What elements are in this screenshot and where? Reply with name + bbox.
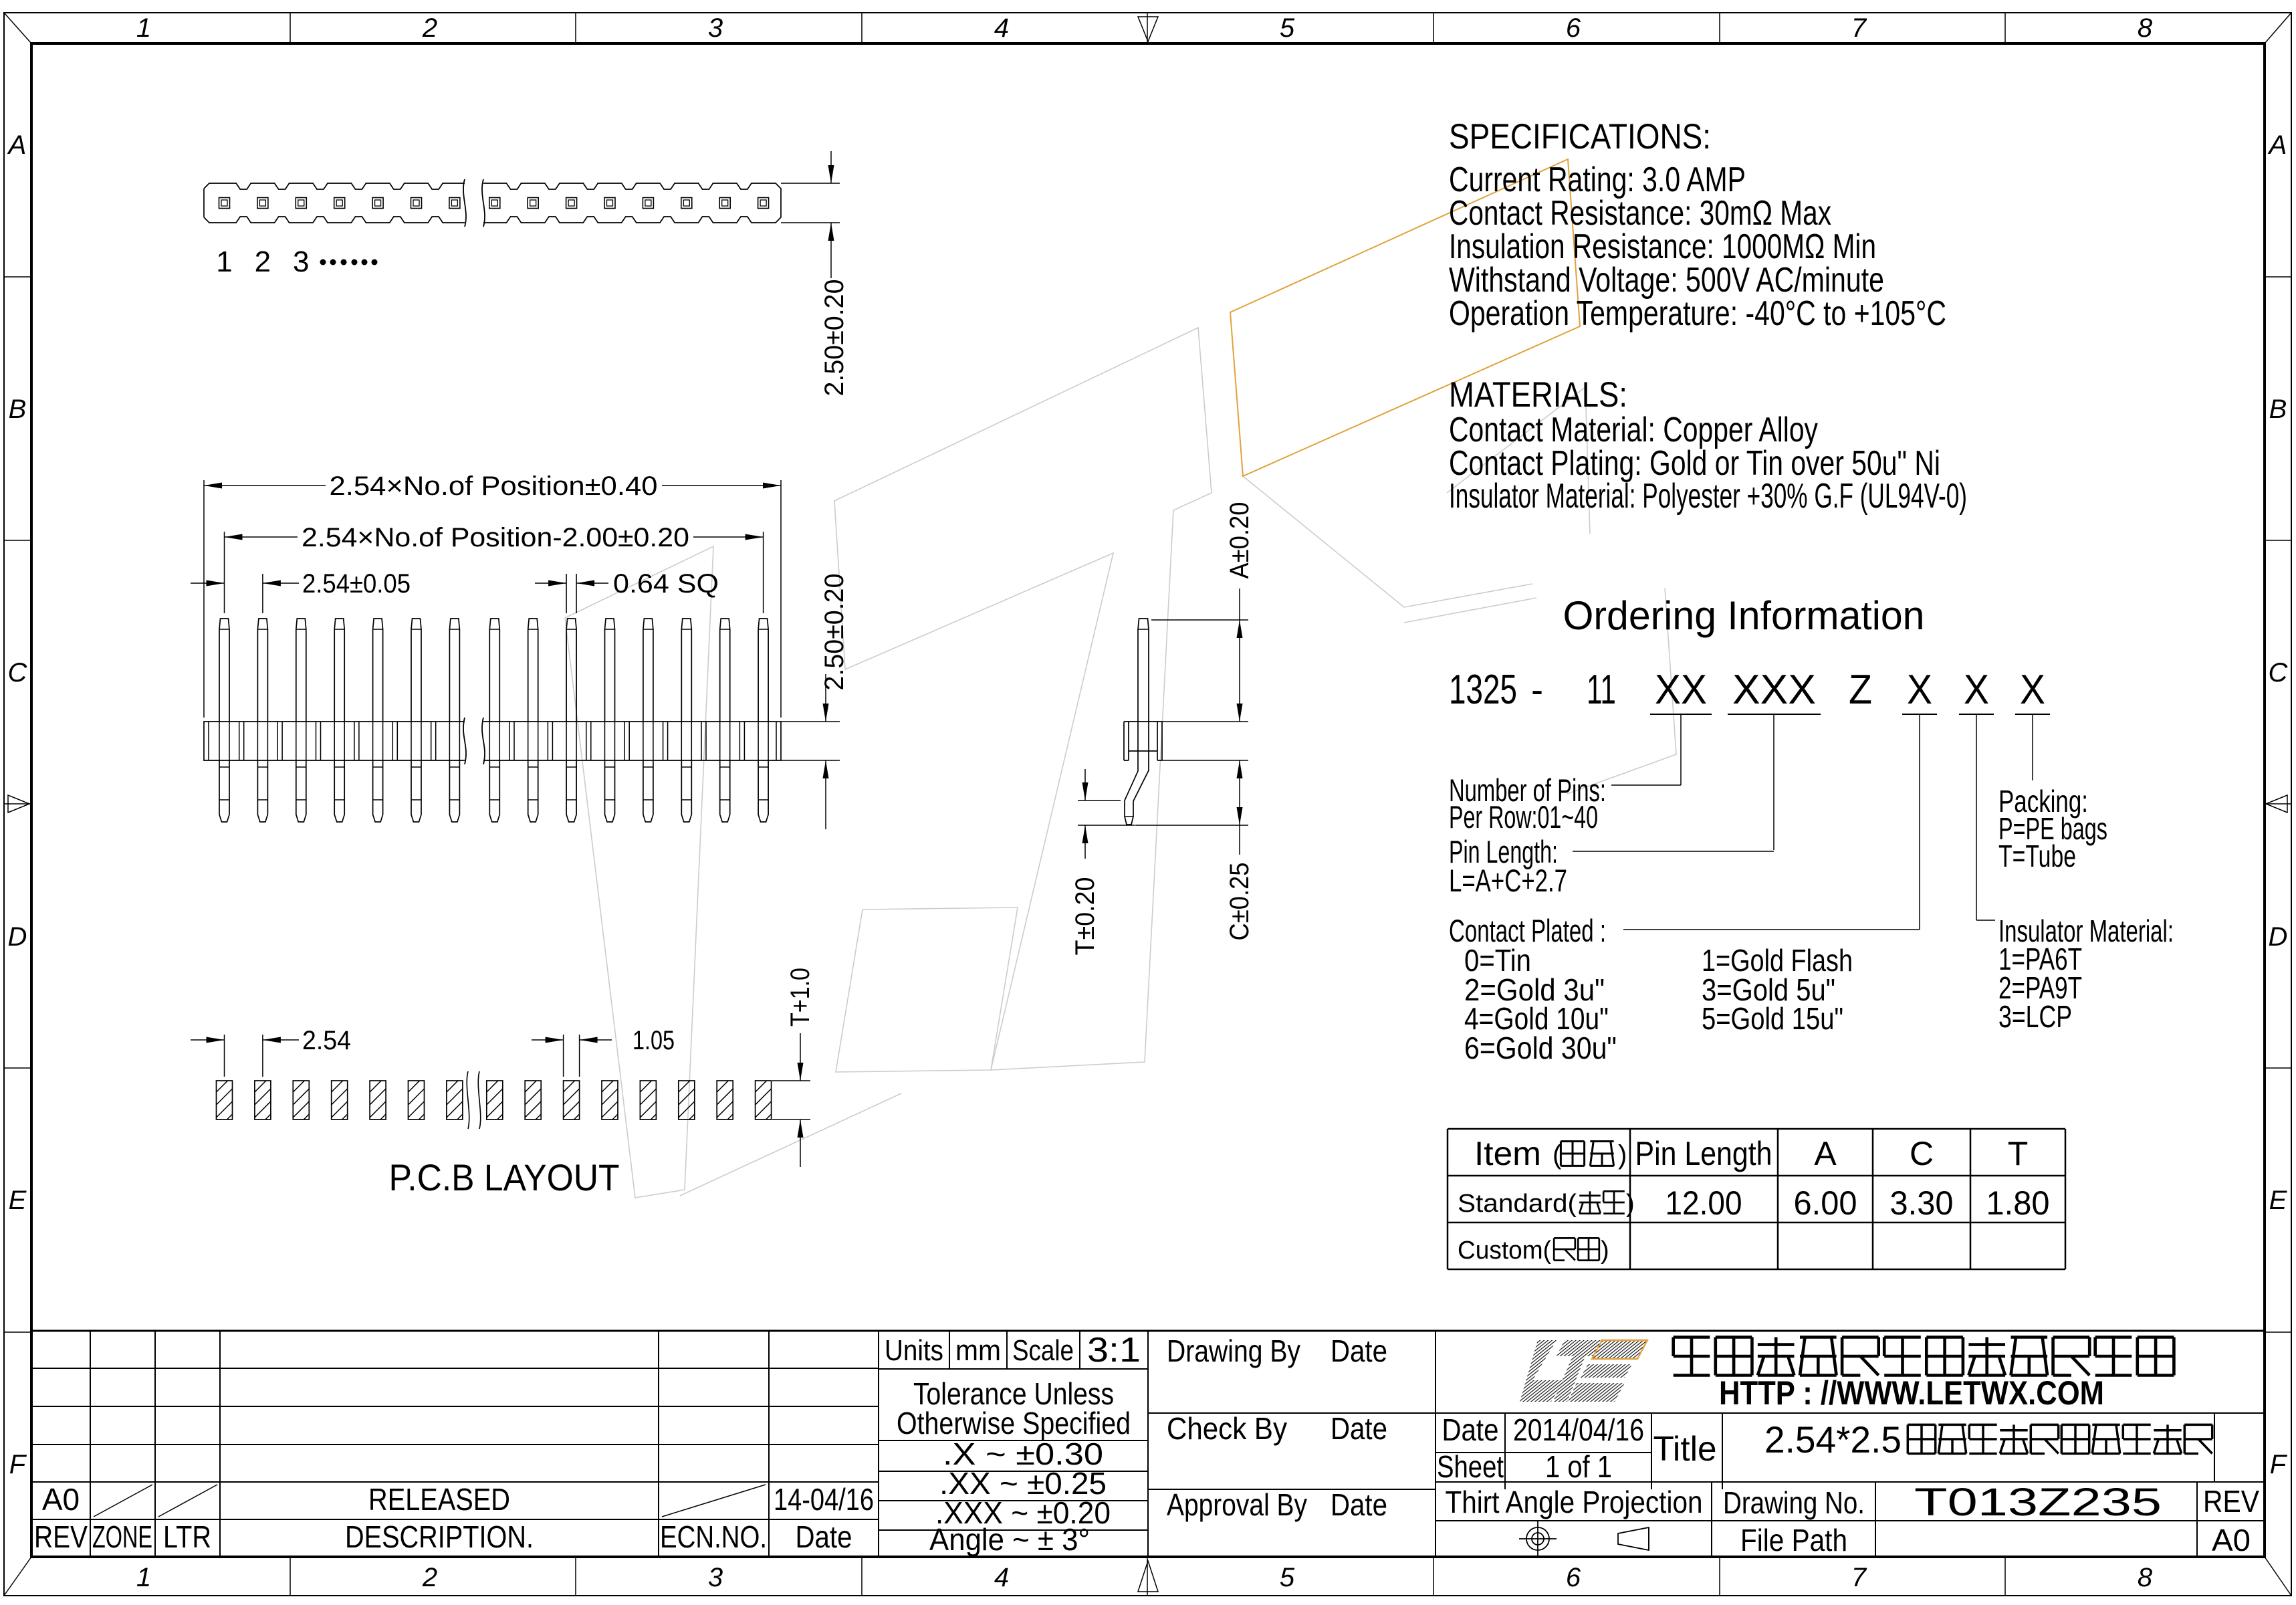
svg-text:7: 7 <box>1851 1563 1867 1592</box>
svg-text:3: 3 <box>293 245 309 278</box>
svg-text:Operation Temperature: -40°C t: Operation Temperature: -40°C to +105°C <box>1449 294 1946 333</box>
svg-text:Angle ~ ± 3°: Angle ~ ± 3° <box>929 1522 1090 1557</box>
svg-text:2.50±0.20: 2.50±0.20 <box>820 574 849 691</box>
svg-text:Standard(: Standard( <box>1458 1190 1577 1218</box>
svg-text:Check By: Check By <box>1167 1411 1287 1446</box>
svg-text:2: 2 <box>422 1563 437 1592</box>
svg-text:2.54±0.05: 2.54±0.05 <box>302 569 411 599</box>
svg-text:8: 8 <box>2138 13 2153 43</box>
svg-text:REV: REV <box>2203 1484 2259 1519</box>
svg-text:X: X <box>1964 667 1989 713</box>
svg-text:5: 5 <box>1280 1563 1295 1592</box>
svg-text:2: 2 <box>422 13 437 43</box>
svg-text:5: 5 <box>1280 13 1295 43</box>
svg-text:File Path: File Path <box>1740 1523 1847 1558</box>
svg-text:6=Gold 30u": 6=Gold 30u" <box>1464 1031 1617 1065</box>
svg-text:E: E <box>2269 1186 2288 1215</box>
svg-text:Custom(: Custom( <box>1458 1237 1551 1265</box>
svg-text:7: 7 <box>1851 13 1867 43</box>
svg-text:2: 2 <box>255 245 271 278</box>
svg-text:Approval By: Approval By <box>1167 1487 1307 1522</box>
svg-text:Date: Date <box>1331 1411 1387 1446</box>
svg-text:T: T <box>2008 1135 2029 1172</box>
svg-text:1.80: 1.80 <box>1986 1184 2050 1222</box>
svg-text:A: A <box>2268 130 2287 160</box>
svg-text:Drawing No.: Drawing No. <box>1723 1485 1865 1520</box>
svg-text:Drawing By: Drawing By <box>1167 1333 1300 1368</box>
svg-text:ECN.NO.: ECN.NO. <box>660 1519 767 1554</box>
svg-text:B: B <box>9 395 27 424</box>
svg-text:4: 4 <box>994 13 1009 43</box>
svg-text:Scale: Scale <box>1012 1334 1074 1367</box>
svg-text:C±0.25: C±0.25 <box>1225 863 1254 941</box>
svg-text:-: - <box>1531 667 1543 713</box>
svg-text:C: C <box>1910 1135 1934 1172</box>
svg-text:Z: Z <box>1849 667 1872 713</box>
svg-text:6.00: 6.00 <box>1794 1184 1857 1222</box>
svg-text:Sheet: Sheet <box>1437 1449 1504 1484</box>
svg-text:2.54×No.of Position-2.00±0.20: 2.54×No.of Position-2.00±0.20 <box>302 523 689 552</box>
svg-text:X: X <box>2020 667 2045 713</box>
svg-text:6: 6 <box>1566 1563 1581 1592</box>
svg-text:1325: 1325 <box>1449 667 1517 713</box>
svg-text:Date: Date <box>1442 1412 1499 1447</box>
svg-text:0.64 SQ: 0.64 SQ <box>613 569 719 599</box>
svg-text:X: X <box>1907 667 1932 713</box>
svg-text:Date: Date <box>1331 1333 1387 1368</box>
svg-text:Pin Length: Pin Length <box>1635 1135 1772 1172</box>
svg-text:8: 8 <box>2138 1563 2153 1592</box>
svg-text:2.54*2.5: 2.54*2.5 <box>1764 1418 1902 1461</box>
svg-text:Units: Units <box>885 1334 943 1367</box>
svg-text:1: 1 <box>136 13 151 43</box>
svg-text:RELEASED: RELEASED <box>368 1482 510 1517</box>
svg-text:Title: Title <box>1653 1430 1717 1469</box>
svg-text:Item: Item <box>1474 1135 1541 1172</box>
svg-text:1.05: 1.05 <box>633 1026 675 1055</box>
svg-text:A: A <box>1814 1135 1837 1172</box>
svg-text:): ) <box>1626 1190 1635 1218</box>
svg-text:REV: REV <box>34 1519 88 1554</box>
svg-text:2.50±0.20: 2.50±0.20 <box>820 280 849 397</box>
svg-text:L=A+C+2.7: L=A+C+2.7 <box>1449 863 1567 898</box>
svg-text:4: 4 <box>994 1563 1009 1592</box>
svg-text:5=Gold 15u": 5=Gold 15u" <box>1702 1001 1843 1036</box>
svg-text:Date: Date <box>796 1519 852 1554</box>
svg-text:Per Row:01~40: Per Row:01~40 <box>1449 799 1598 835</box>
svg-text:Date: Date <box>1331 1487 1387 1522</box>
svg-text:SPECIFICATIONS:: SPECIFICATIONS: <box>1449 117 1711 156</box>
svg-text:2.54: 2.54 <box>302 1026 351 1055</box>
svg-text:DESCRIPTION.: DESCRIPTION. <box>345 1519 534 1554</box>
svg-text:T=Tube: T=Tube <box>1998 839 2076 873</box>
svg-text:T+1.0: T+1.0 <box>786 968 815 1027</box>
svg-text:3: 3 <box>708 13 723 43</box>
svg-text:HTTP : //WWW.LETWX.COM: HTTP : //WWW.LETWX.COM <box>1719 1374 2104 1412</box>
svg-text:A0: A0 <box>42 1482 80 1517</box>
svg-text:B: B <box>2269 395 2287 424</box>
svg-text:T±0.20: T±0.20 <box>1070 877 1100 956</box>
svg-text:LTR: LTR <box>163 1519 211 1554</box>
svg-text:mm: mm <box>955 1334 1001 1367</box>
svg-text:3=LCP: 3=LCP <box>1998 999 2072 1034</box>
svg-text:): ) <box>1601 1237 1609 1265</box>
svg-text:P.C.B LAYOUT: P.C.B LAYOUT <box>389 1156 620 1198</box>
svg-text:ZONE: ZONE <box>92 1519 152 1554</box>
svg-text:3.30: 3.30 <box>1890 1184 1954 1222</box>
svg-text:MATERIALS:: MATERIALS: <box>1449 375 1627 415</box>
svg-text:XX: XX <box>1655 667 1707 713</box>
svg-text:Thirt Angle Projection: Thirt Angle Projection <box>1446 1485 1703 1519</box>
svg-text:D: D <box>2269 922 2288 952</box>
svg-text:2.54×No.of Position±0.40: 2.54×No.of Position±0.40 <box>330 471 658 501</box>
svg-text:3: 3 <box>708 1563 723 1592</box>
svg-text:T013Z235: T013Z235 <box>1914 1481 2162 1524</box>
svg-text:E: E <box>9 1186 27 1215</box>
svg-text:): ) <box>1618 1140 1627 1170</box>
svg-text:11: 11 <box>1587 667 1616 713</box>
svg-text:C: C <box>8 658 28 687</box>
svg-text:2014/04/16: 2014/04/16 <box>1513 1412 1644 1447</box>
svg-text:Ordering Information: Ordering Information <box>1563 593 1925 638</box>
svg-text:XXX: XXX <box>1732 667 1816 713</box>
svg-text:6: 6 <box>1566 13 1581 43</box>
svg-text:A: A <box>7 130 27 160</box>
svg-text:A0: A0 <box>2212 1523 2251 1558</box>
svg-text:1: 1 <box>136 1563 151 1592</box>
svg-text:Insulator Material: Polyester: Insulator Material: Polyester +30% G.F (… <box>1449 477 1967 516</box>
svg-text:A±0.20: A±0.20 <box>1225 502 1254 579</box>
svg-text:1: 1 <box>216 245 232 278</box>
svg-text:1 of 1: 1 of 1 <box>1545 1449 1612 1484</box>
svg-text:F: F <box>2270 1450 2288 1479</box>
svg-text:3:1: 3:1 <box>1087 1331 1141 1370</box>
svg-text:F: F <box>9 1450 27 1479</box>
svg-text:Otherwise Specified: Otherwise Specified <box>897 1406 1131 1440</box>
svg-text:12.00: 12.00 <box>1666 1184 1742 1222</box>
svg-text:C: C <box>2269 658 2289 687</box>
svg-text:D: D <box>8 922 27 952</box>
svg-text:14-04/16: 14-04/16 <box>774 1482 874 1517</box>
